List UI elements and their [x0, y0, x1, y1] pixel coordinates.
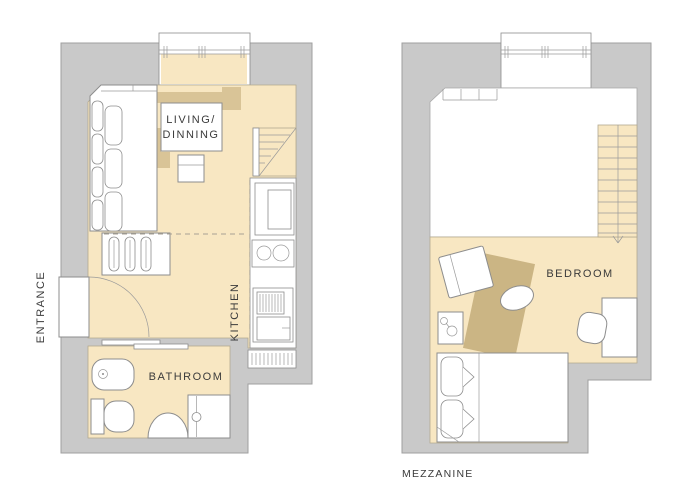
bathroom-label: BATHROOM — [149, 371, 224, 383]
shower — [188, 395, 230, 438]
vent-grille — [248, 350, 296, 368]
bed — [437, 353, 568, 442]
bedroom-label: BEDROOM — [546, 268, 613, 280]
floorplan-drawing: LIVING/ DINNING KITCHEN BATHROOM ENTRANC… — [0, 0, 700, 500]
living-dining-label-line1: LIVING/ — [166, 114, 216, 126]
dining-chair — [178, 155, 204, 182]
mezzanine-title: MEZZANINE — [402, 468, 473, 480]
sofa — [90, 85, 157, 231]
accent-strip — [155, 92, 222, 103]
staircase-mezzanine — [598, 125, 637, 243]
mezzanine-floor-plan: BEDROOM MEZZANINE — [402, 33, 651, 480]
mezzanine-bay-window — [501, 33, 591, 88]
dining-table — [161, 103, 222, 151]
living-dining-label-line2: DINNING — [163, 129, 220, 141]
hanger-icon — [109, 237, 151, 271]
kitchen-label: KITCHEN — [229, 283, 241, 342]
ground-floor-plan: LIVING/ DINNING KITCHEN BATHROOM ENTRANC… — [35, 33, 312, 453]
side-table — [438, 312, 463, 344]
refrigerator — [255, 183, 294, 235]
kitchen-sink-unit — [253, 288, 293, 342]
accent-corner — [222, 87, 241, 110]
staircase-ground — [253, 128, 296, 176]
bay-window-box — [501, 33, 591, 88]
washbasin — [92, 359, 134, 390]
cooktop — [252, 240, 294, 267]
kitchen-counter — [248, 178, 296, 368]
entrance-label: ENTRANCE — [35, 271, 47, 344]
ground-bay-window — [159, 33, 250, 85]
toilet — [91, 399, 134, 434]
bay-window-floor — [161, 54, 247, 84]
pillow — [441, 357, 463, 396]
coat-closet — [102, 233, 170, 275]
desk — [602, 298, 637, 357]
floorplan-canvas: LIVING/ DINNING KITCHEN BATHROOM ENTRANC… — [0, 0, 700, 500]
